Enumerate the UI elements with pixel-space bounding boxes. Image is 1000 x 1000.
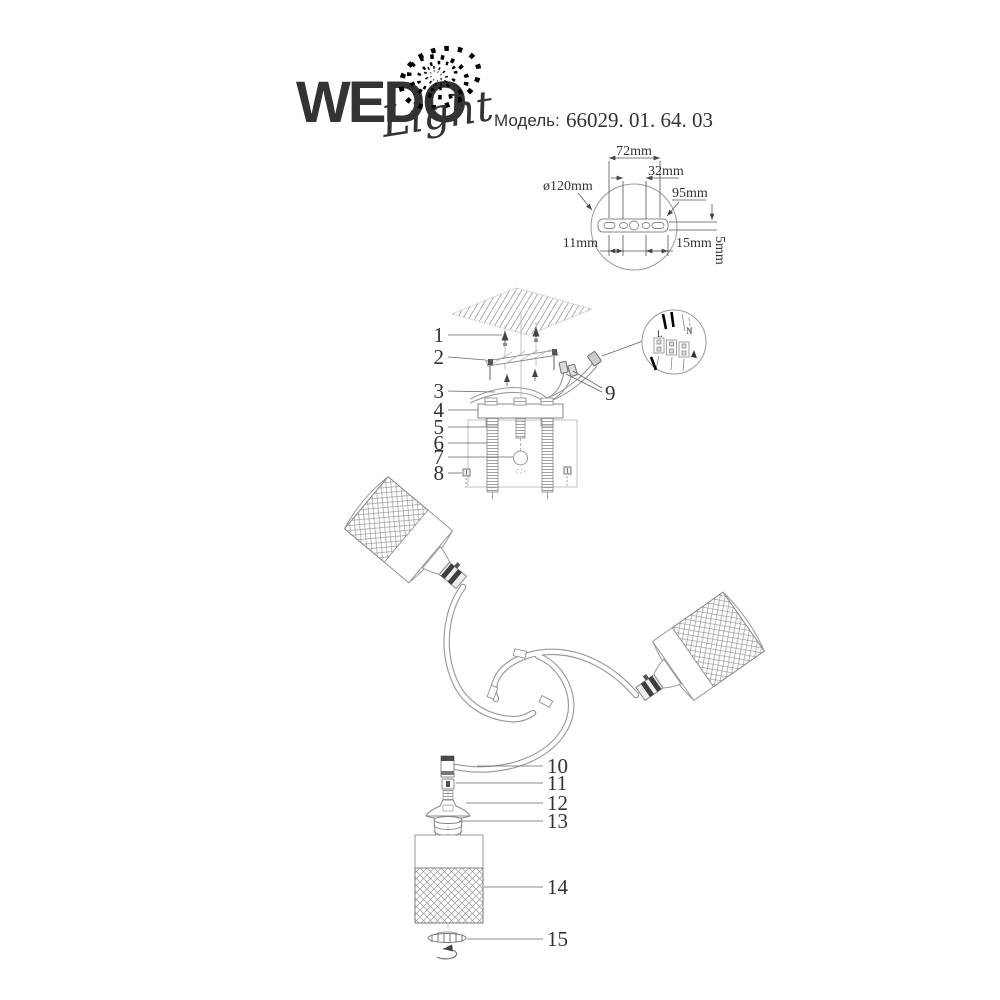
part-label-13: 13 [547, 809, 568, 833]
arm-fitting [441, 756, 454, 777]
fixture-arms [447, 587, 636, 769]
model-label: Модель: [494, 111, 560, 130]
dim-95: 95mm [667, 186, 708, 216]
instruction-sheet: WEDO Light Модель: 66029. 01. 64. 03 [0, 0, 1000, 1000]
dim-center-span: 32mm [648, 164, 684, 179]
exploded-lamp-assembly: 10 11 12 13 14 15 [415, 754, 569, 959]
part-label-14: 14 [547, 875, 569, 899]
center-stud [514, 418, 528, 473]
part-label-9: 9 [605, 381, 616, 405]
finial-disc [428, 932, 466, 943]
terminal-label-neutral: N [686, 326, 693, 336]
brand-logo: WEDO Light [296, 38, 496, 147]
dim-diameter: ø120mm [543, 179, 593, 194]
decorative-ball [514, 451, 528, 465]
installation-diagram: 1 2 3 4 5 6 7 8 9 L N [434, 288, 707, 499]
dim-diameter-group: ø120mm [543, 179, 593, 210]
canopy-bar [478, 404, 563, 418]
mounting-strap [486, 349, 558, 386]
ceiling-surface [452, 288, 592, 335]
terminal-detail-circle: L N [642, 310, 706, 374]
right-lampshade [620, 590, 767, 723]
model-line: Модель: 66029. 01. 64. 03 [494, 108, 713, 132]
dim-72: 72mm [609, 144, 660, 218]
dim-plate-width: 95mm [672, 186, 708, 201]
side-screws [463, 467, 571, 489]
detail-leader [602, 341, 643, 356]
mounting-plate-dimensions: 72mm 32mm 95mm ø120mm [543, 144, 727, 270]
shade-drum [415, 835, 483, 923]
model-number: 66029. 01. 64. 03 [566, 108, 713, 132]
part-label-8: 8 [434, 461, 445, 485]
dim-slot-right: 15mm [676, 236, 712, 251]
dim-top-width: 72mm [616, 144, 652, 159]
dim-thickness: 5mm [712, 236, 727, 265]
mounting-bar-holes [604, 221, 664, 230]
part-label-15: 15 [547, 927, 568, 951]
canopy-assembly [463, 398, 577, 499]
threaded-nipple [442, 779, 454, 800]
rotation-arrow-icon [437, 949, 457, 959]
technical-drawing: WEDO Light Модель: 66029. 01. 64. 03 [0, 0, 1000, 1000]
terminal-label-live: L [657, 329, 663, 339]
part-label-2: 2 [434, 345, 445, 369]
arm-bottom [456, 656, 571, 769]
part-label-1: 1 [434, 323, 445, 347]
dim-thickness-group: 5mm [669, 204, 727, 265]
dim-bottom: 11mm 15mm [563, 235, 712, 256]
dim-slot-left: 11mm [563, 236, 598, 251]
